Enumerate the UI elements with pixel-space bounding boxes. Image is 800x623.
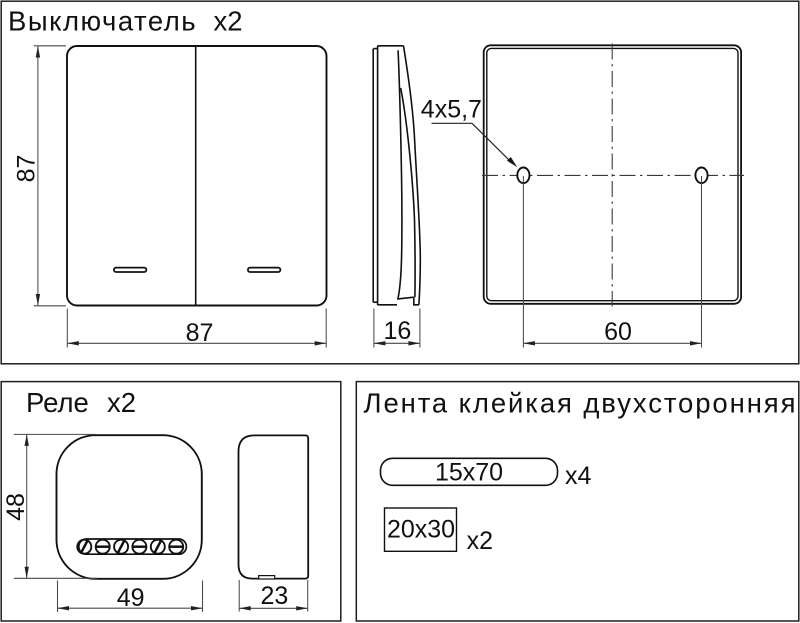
svg-text:15x70: 15x70 xyxy=(435,458,503,486)
svg-text:49: 49 xyxy=(117,584,145,612)
svg-text:х2: х2 xyxy=(107,387,136,418)
svg-text:x2: x2 xyxy=(467,527,493,555)
svg-text:23: 23 xyxy=(260,582,288,610)
svg-text:20x30: 20x30 xyxy=(387,516,455,544)
svg-text:87: 87 xyxy=(13,155,41,183)
svg-text:Лента клейкая двухсторонняя: Лента клейкая двухсторонняя xyxy=(364,388,798,419)
svg-text:4x5,7: 4x5,7 xyxy=(421,95,482,123)
svg-text:87: 87 xyxy=(186,319,214,347)
svg-text:Реле: Реле xyxy=(26,387,89,418)
svg-text:Выключатель: Выключатель xyxy=(8,6,197,37)
svg-text:x4: x4 xyxy=(565,462,592,490)
svg-text:60: 60 xyxy=(604,318,632,346)
svg-text:48: 48 xyxy=(2,493,30,521)
svg-text:х2: х2 xyxy=(214,6,243,37)
svg-text:16: 16 xyxy=(383,317,411,345)
